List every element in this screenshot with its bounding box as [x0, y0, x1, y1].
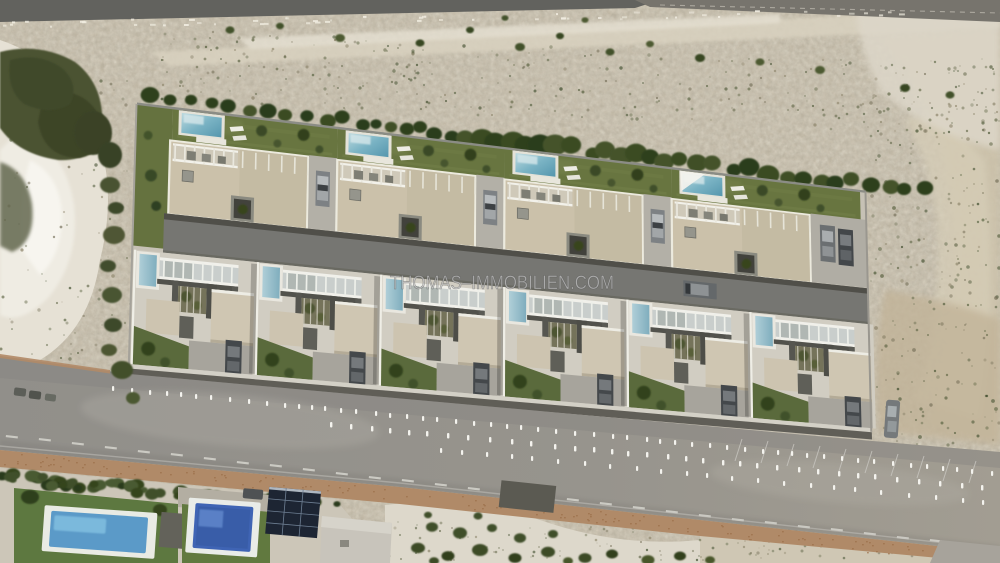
svg-text:THOMAS–IMMOBILIEN.COM: THOMAS–IMMOBILIEN.COM: [390, 273, 614, 294]
